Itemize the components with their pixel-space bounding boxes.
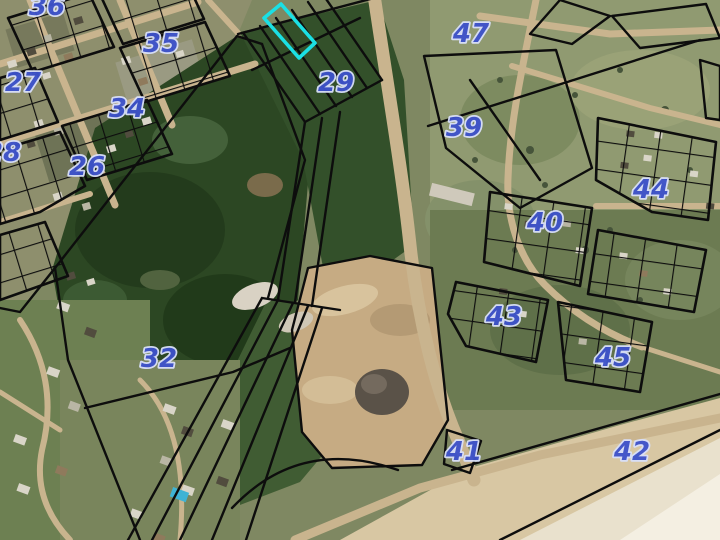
block-label: 36 [29, 0, 65, 22]
block-label: 26 [69, 152, 105, 182]
block-label: 44 [632, 175, 669, 205]
block-label: 45 [594, 343, 631, 373]
block-label: 47 [452, 19, 490, 49]
block-label: 43 [485, 302, 522, 332]
block-label: 39 [446, 113, 482, 143]
block-label: 29 [318, 68, 354, 98]
block-label: 35 [143, 29, 179, 59]
block-label: 42 [613, 437, 650, 467]
block-label: 40 [526, 208, 563, 238]
block-label: 28 [0, 138, 21, 168]
block-label: 32 [141, 344, 177, 374]
block-label: 41 [445, 437, 482, 467]
block-label: 27 [5, 68, 42, 98]
satellite-map[interactable]: 36352734282629473944404345324142 [0, 0, 720, 540]
map-viewport[interactable]: 36352734282629473944404345324142 [0, 0, 720, 540]
block-label: 34 [109, 94, 145, 124]
